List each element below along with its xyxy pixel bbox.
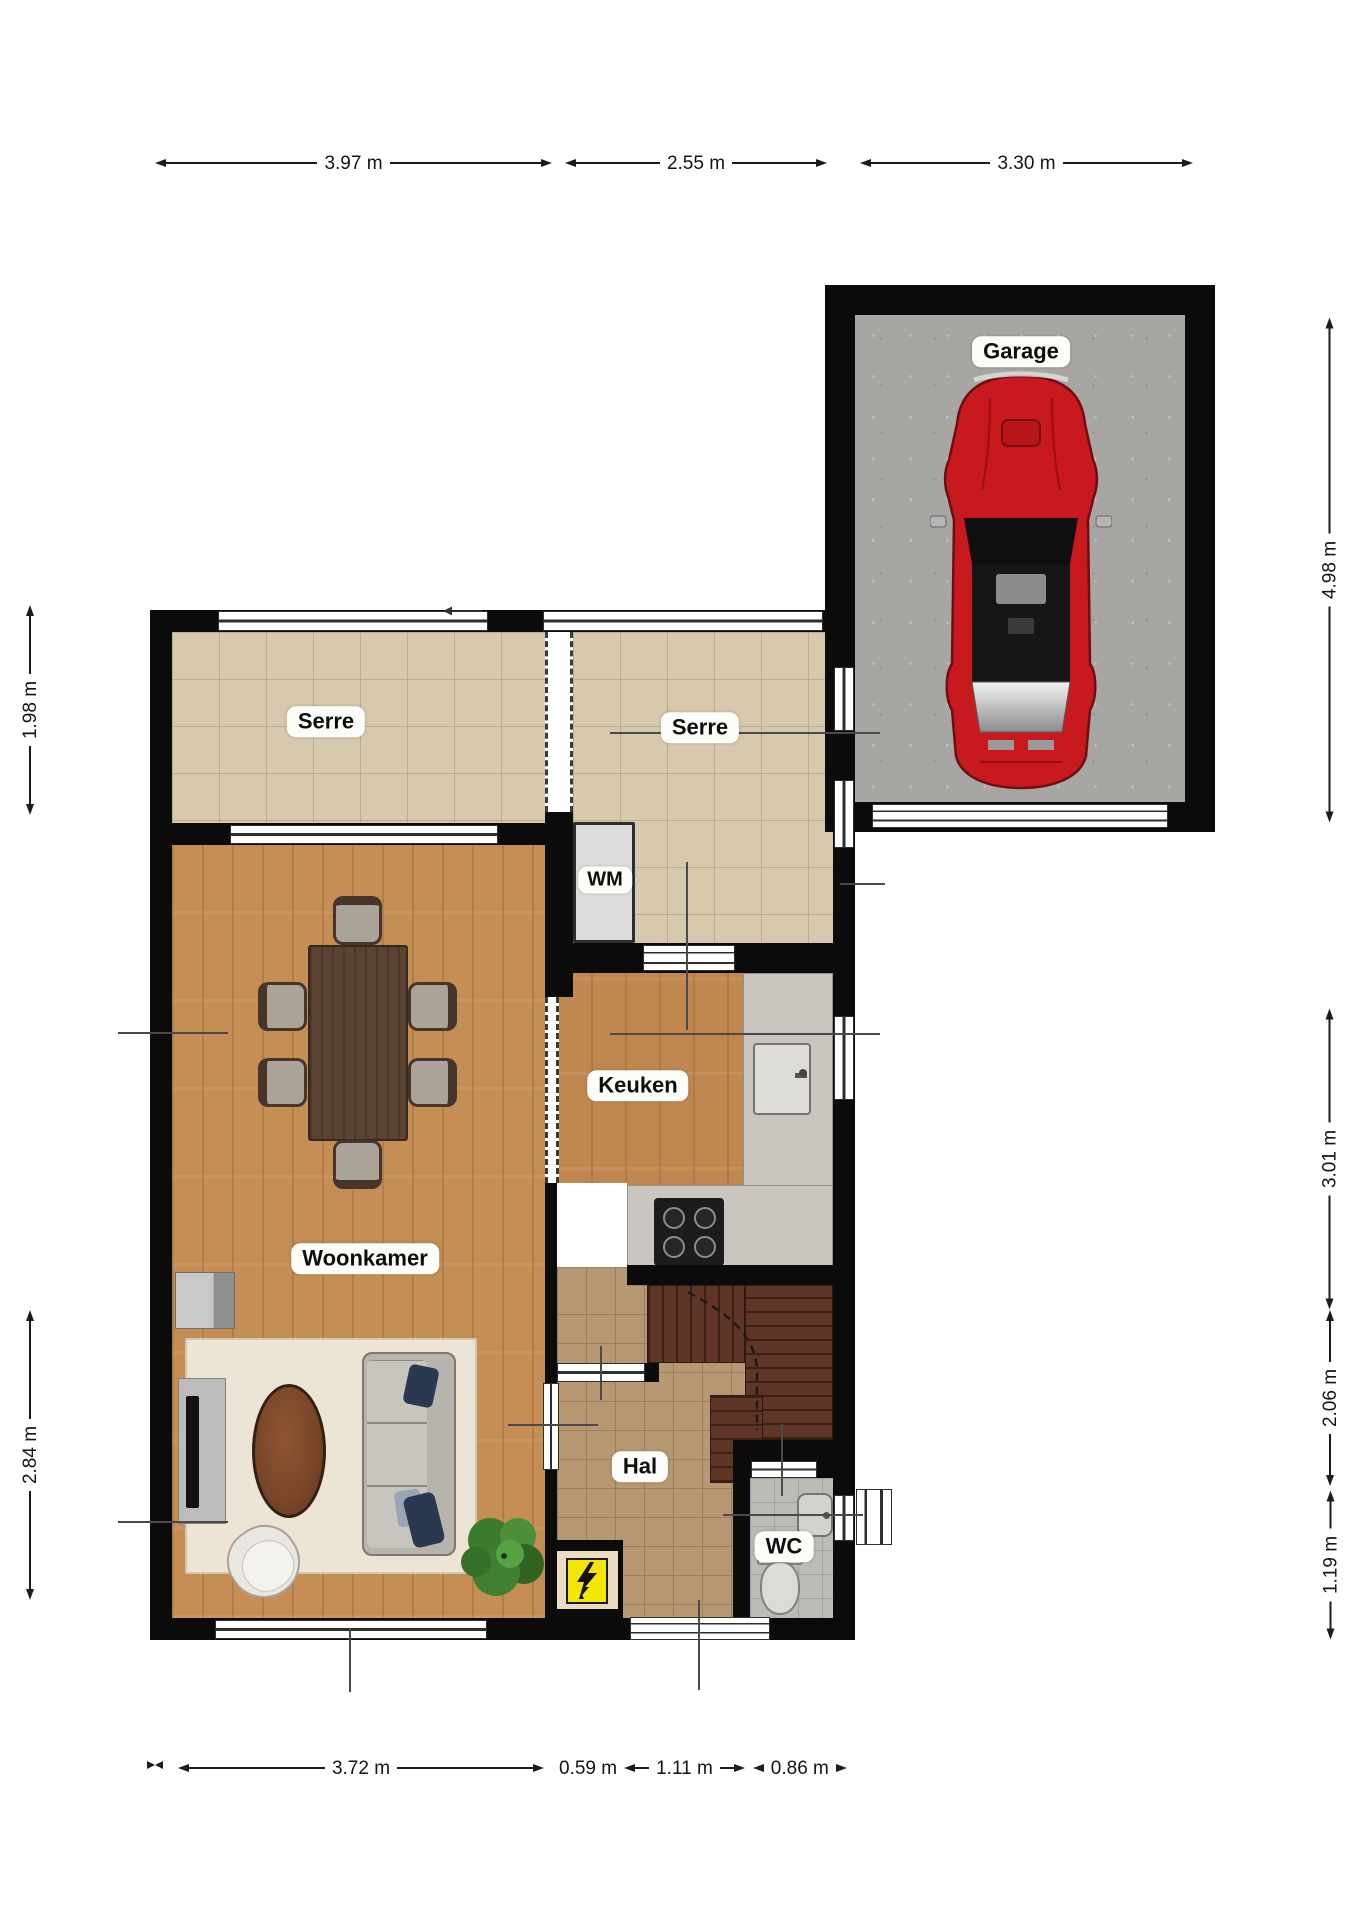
dimension-value: 1.11 m <box>649 1759 720 1778</box>
window-tick <box>840 883 885 885</box>
dimension-value: 2.84 m <box>21 1419 40 1491</box>
dimension-value: 3.72 m <box>325 1759 397 1778</box>
dimension-right-3: 2.06 m <box>1319 1310 1341 1486</box>
dining-chair <box>408 1058 457 1107</box>
dimension-value: 1.19 m <box>1321 1529 1340 1601</box>
room-label-hal: Hal <box>612 1451 668 1482</box>
room-label-wc: WC <box>755 1531 814 1562</box>
interior-door <box>543 1383 559 1470</box>
dimension-value: 2.06 m <box>1321 1362 1340 1434</box>
window <box>834 667 854 731</box>
window <box>543 611 823 631</box>
room-label-garage: Garage <box>972 336 1070 367</box>
dimension-left-2: 2.84 m <box>19 1310 41 1600</box>
wall <box>545 1183 557 1383</box>
dining-chair <box>258 1058 307 1107</box>
window-sill <box>856 1489 892 1545</box>
window <box>834 1016 854 1100</box>
window-tick <box>118 1032 228 1034</box>
window-tick <box>610 1033 880 1035</box>
dining-table <box>308 945 408 1141</box>
stairs-walk-line <box>640 1280 770 1440</box>
dimension-value: 0.59 m <box>552 1759 624 1778</box>
dimension-right-1: 4.98 m <box>1319 318 1341 823</box>
window <box>230 825 498 844</box>
dimension-value: 2.55 m <box>660 154 732 173</box>
room-label-wm: WM <box>578 867 632 894</box>
lightning-bolt-icon <box>569 1560 606 1601</box>
dimension-value: 3.30 m <box>990 154 1062 173</box>
room-label-woonkamer: Woonkamer <box>291 1243 439 1274</box>
wc-door <box>751 1461 817 1478</box>
window <box>834 780 854 848</box>
wall <box>545 823 573 997</box>
dimension-value: 4.98 m <box>1320 534 1339 606</box>
wall-thickness-marker <box>147 1761 163 1769</box>
kitchen-sink <box>753 1043 811 1115</box>
wall <box>150 610 172 1640</box>
dining-chair <box>333 1140 382 1189</box>
dining-chair <box>333 896 382 945</box>
dimension-value: 0.86 m <box>764 1759 836 1778</box>
open-passage <box>545 632 573 812</box>
dimension-right-2: 3.01 m <box>1319 1009 1341 1310</box>
entrance-arrow-icon <box>443 602 485 620</box>
window-tick <box>686 862 688 1030</box>
window-tick <box>610 732 880 734</box>
room-label-keuken: Keuken <box>587 1070 688 1101</box>
wall <box>627 1265 855 1285</box>
dimension-value: 3.01 m <box>1320 1123 1339 1195</box>
wall <box>545 812 573 823</box>
electric-meter <box>566 1558 608 1604</box>
tv <box>186 1396 199 1508</box>
car <box>930 368 1112 796</box>
dimension-top-2: 2.55 m <box>565 152 827 174</box>
wall <box>545 1470 557 1618</box>
window <box>215 1620 487 1639</box>
keuken-doorway-gap <box>557 1183 627 1267</box>
plant <box>460 1510 546 1606</box>
dining-chair <box>258 982 307 1031</box>
door-tick <box>781 1424 783 1496</box>
window <box>834 1495 854 1541</box>
dimension-bottom-1: 3.72 m <box>178 1757 544 1779</box>
room-label-serre-left: Serre <box>287 706 365 737</box>
dimension-top-3: 3.30 m <box>860 152 1193 174</box>
sideboard <box>175 1272 235 1329</box>
coffee-table <box>252 1384 326 1518</box>
sliding-door <box>643 945 735 971</box>
door-tick <box>600 1346 602 1400</box>
stove <box>654 1198 724 1266</box>
dimension-top-1: 3.97 m <box>155 152 552 174</box>
dimension-value: 1.98 m <box>21 674 40 746</box>
dimension-value: 3.97 m <box>317 154 389 173</box>
door-tick <box>698 1600 700 1690</box>
dimension-bottom-small: 0.59 m 1.11 m 0.86 m <box>552 1757 847 1779</box>
window-tick <box>118 1521 228 1523</box>
door-tick <box>508 1424 598 1426</box>
wall <box>733 1478 750 1618</box>
window-tick <box>723 1514 863 1516</box>
dimension-left-1: 1.98 m <box>19 605 41 815</box>
dimension-right-4: 1.19 m <box>1320 1491 1342 1640</box>
open-passage <box>545 997 559 1183</box>
floor-plan: Garage Serre Serre WM Keuken Woonkamer H… <box>0 0 1358 1920</box>
room-label-serre-right: Serre <box>661 712 739 743</box>
window-tick <box>349 1628 351 1692</box>
door-jamb <box>645 1363 659 1382</box>
front-door <box>630 1617 770 1640</box>
dining-chair <box>408 982 457 1031</box>
hal-nook-floor <box>557 1267 627 1287</box>
garage-door <box>872 804 1168 828</box>
